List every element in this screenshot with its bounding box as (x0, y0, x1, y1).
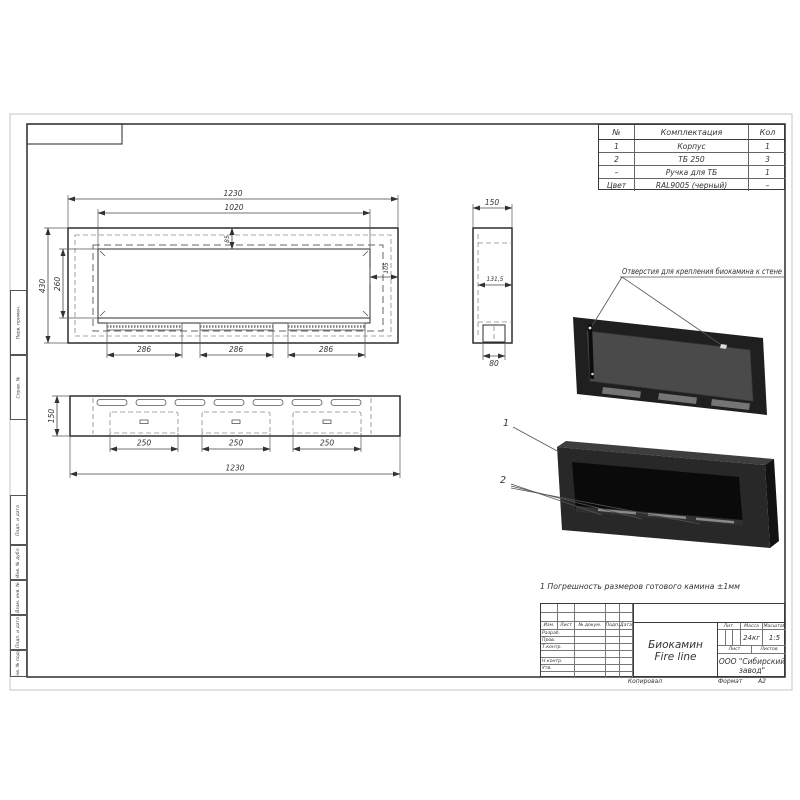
title-block-cell (620, 651, 633, 658)
bottom-burner-footprint-3 (293, 412, 361, 433)
copy-number-box (27, 124, 122, 144)
bottom-dim-250-2: 250 (229, 439, 244, 448)
front-dim-1230: 1230 (223, 189, 242, 198)
title-block-cell (558, 604, 575, 613)
lit-cell (733, 630, 741, 646)
margin-stamp-label: Инв. № дубл. (16, 547, 21, 578)
parts-row-name: RAL9005 (черный) (635, 179, 749, 191)
copied-label: Копировал (610, 678, 680, 685)
parts-row-qty: 1 (749, 166, 786, 179)
title-block-cell (575, 644, 606, 651)
col-doc: № докум. (575, 622, 606, 630)
tolerance-note: 1 Погрешность размеров готового камина ±… (540, 582, 740, 591)
lit-cell (718, 630, 726, 646)
col-izm: Изм. (541, 622, 558, 630)
parts-col-name: Комплектация (635, 125, 749, 140)
margin-stamp-podp-data-1: Подп. и дата (10, 495, 27, 545)
mass-label: Масса (741, 622, 763, 630)
bottom-dim-250-1: 250 (137, 439, 152, 448)
front-burner-shelf (98, 318, 370, 323)
title-block-cell (575, 665, 606, 672)
scale-label: Масштаб (763, 622, 786, 630)
margin-stamp-label: Подп. и дата (16, 617, 21, 648)
title-block-cell (541, 604, 558, 613)
col-podp: Подп. (606, 622, 620, 630)
sheets-label: Листов (752, 646, 786, 654)
bottom-dim-250-3: 250 (320, 439, 335, 448)
scale-value: 1:5 (763, 630, 786, 646)
margin-stamp-label: Справ. № (16, 377, 21, 399)
title-block-cell (606, 658, 620, 665)
bottom-view: 150 250 250 250 1230 (47, 396, 400, 478)
col-data: Дата (620, 622, 633, 630)
company-name: ООО "Сибирский завод" (718, 654, 786, 678)
drawing-title: Биокамин Fire line (634, 622, 718, 678)
parts-row-name: Корпус (635, 140, 749, 153)
margin-stamp-podp-data-2: Подп. и дата (10, 615, 27, 650)
side-dim-131-5: 131,5 (486, 276, 503, 283)
title-block-cell (606, 630, 620, 637)
format-label: Формат (718, 678, 742, 685)
title-block-cell (620, 665, 633, 672)
bottom-dim-1230: 1230 (225, 464, 244, 473)
title-block-cell (620, 644, 633, 651)
front-dim-286-3: 286 (319, 345, 334, 354)
format-value: А2 (758, 678, 766, 685)
title-block-cell (620, 658, 633, 665)
front-view: 1230 1020 430 260 85 105 286 286 286 (38, 189, 398, 358)
drawing-title-line1: Биокамин (648, 639, 703, 651)
company-name-line1: ООО "Сибирский (719, 657, 785, 666)
parts-row-qty: – (749, 179, 786, 191)
title-block-cell (606, 604, 620, 613)
front-burner-slot-3 (288, 323, 365, 330)
front-dim-286-2: 286 (229, 345, 244, 354)
parts-row-name: ТБ 250 (635, 153, 749, 166)
row-utv: Утв. (541, 665, 575, 672)
bottom-dim-150: 150 (47, 409, 56, 424)
title-block-revision-grid: Изм. Лист № докум. Подп. Дата Разраб. Пр… (541, 604, 634, 678)
title-block-cell (575, 672, 606, 678)
margin-stamp-label: Инв. № подл. (16, 650, 21, 677)
bottom-burner-footprint-2 (202, 412, 270, 433)
drawing-title-line2: Fire line (654, 651, 696, 663)
title-block-cell (606, 637, 620, 644)
title-block: Изм. Лист № докум. Подп. Дата Разраб. Пр… (540, 603, 785, 677)
front-dim-1020: 1020 (224, 203, 243, 212)
front-dim-260: 260 (53, 277, 62, 292)
lit-cell (726, 630, 733, 646)
parts-row-qty: 3 (749, 153, 786, 166)
front-dashed-outline (75, 235, 391, 336)
sheet-label: Лист (718, 646, 752, 654)
front-dim-286-1: 286 (137, 345, 152, 354)
margin-stamp-label: Перв. примен. (16, 306, 21, 340)
side-dim-150: 150 (485, 198, 500, 207)
front-dim-430: 430 (38, 279, 47, 294)
parts-row-num: – (599, 166, 635, 179)
title-block-cell (541, 613, 558, 622)
title-block-cell (606, 613, 620, 622)
front-opening-outline (98, 249, 370, 318)
parts-row-qty: 1 (749, 140, 786, 153)
drawing-linework: 1230 1020 430 260 85 105 286 286 286 (0, 0, 800, 800)
mount-hole-right (720, 344, 727, 349)
title-block-cell (606, 651, 620, 658)
drawing-sheet: 1230 1020 430 260 85 105 286 286 286 (0, 0, 800, 800)
mount-holes-annotation: Отверстия для крепления биокамина к стен… (622, 267, 782, 276)
row-razrab: Разраб. (541, 630, 575, 637)
margin-stamp-label: Подп. и дата (16, 505, 21, 536)
side-dim-80: 80 (489, 359, 499, 368)
parts-row-num: 1 (599, 140, 635, 153)
margin-stamp-sprav: Справ. № (10, 355, 27, 420)
margin-stamp-inv-dubl: Инв. № дубл. (10, 545, 27, 580)
parts-row-num: 2 (599, 153, 635, 166)
front-dim-105: 105 (383, 262, 390, 274)
margin-stamp-vzam-inv: Взам. инв. № (10, 580, 27, 615)
title-block-cell (558, 613, 575, 622)
company-name-line2: завод" (739, 666, 765, 675)
margin-stamp-inv-podl: Инв. № подл. (10, 650, 27, 677)
title-block-cell (620, 637, 633, 644)
fireplace-front-3d-view: 1 2 (500, 418, 779, 548)
side-outline (473, 228, 512, 343)
callout-2-label: 2 (500, 475, 506, 486)
lit-label: Лит. (718, 622, 741, 630)
title-block-cell (620, 630, 633, 637)
row-tkontr: Т.контр. (541, 644, 575, 651)
title-block-cell (620, 604, 633, 613)
mount-hole-left-lower (591, 373, 594, 376)
fireplace-back-3d-view: Отверстия для крепления биокамина к стен… (573, 267, 784, 415)
mass-value: 24кг (741, 630, 763, 646)
title-block-cell (575, 604, 606, 613)
title-block-cell (620, 613, 633, 622)
parts-col-num: № (599, 125, 635, 140)
margin-stamp-label: Взам. инв. № (16, 582, 21, 613)
front-dim-85: 85 (224, 235, 231, 243)
parts-row-num: Цвет (599, 179, 635, 191)
col-list: Лист (558, 622, 575, 630)
title-block-cell (575, 658, 606, 665)
title-block-cell (575, 613, 606, 622)
title-block-cell (541, 672, 575, 678)
parts-col-qty: Кол (749, 125, 786, 140)
title-block-cell (606, 665, 620, 672)
title-block-cell (575, 651, 606, 658)
mount-hole-left (589, 327, 592, 330)
parts-table: № Комплектация Кол 1 Корпус 1 2 ТБ 250 3… (598, 124, 785, 190)
title-block-cell (575, 630, 606, 637)
margin-stamp-perv-primen: Перв. примен. (10, 290, 27, 355)
bottom-outline (70, 396, 400, 436)
title-block-cell (541, 651, 575, 658)
row-prov: Пров. (541, 637, 575, 644)
row-nkontr: Н.контр. (541, 658, 575, 665)
bottom-burner-footprint-1 (110, 412, 178, 433)
title-block-cell (606, 644, 620, 651)
title-block-cell (575, 637, 606, 644)
side-view: 150 131,5 80 (473, 198, 512, 368)
parts-row-name: Ручка для ТБ (635, 166, 749, 179)
callout-1-label: 1 (503, 418, 509, 429)
